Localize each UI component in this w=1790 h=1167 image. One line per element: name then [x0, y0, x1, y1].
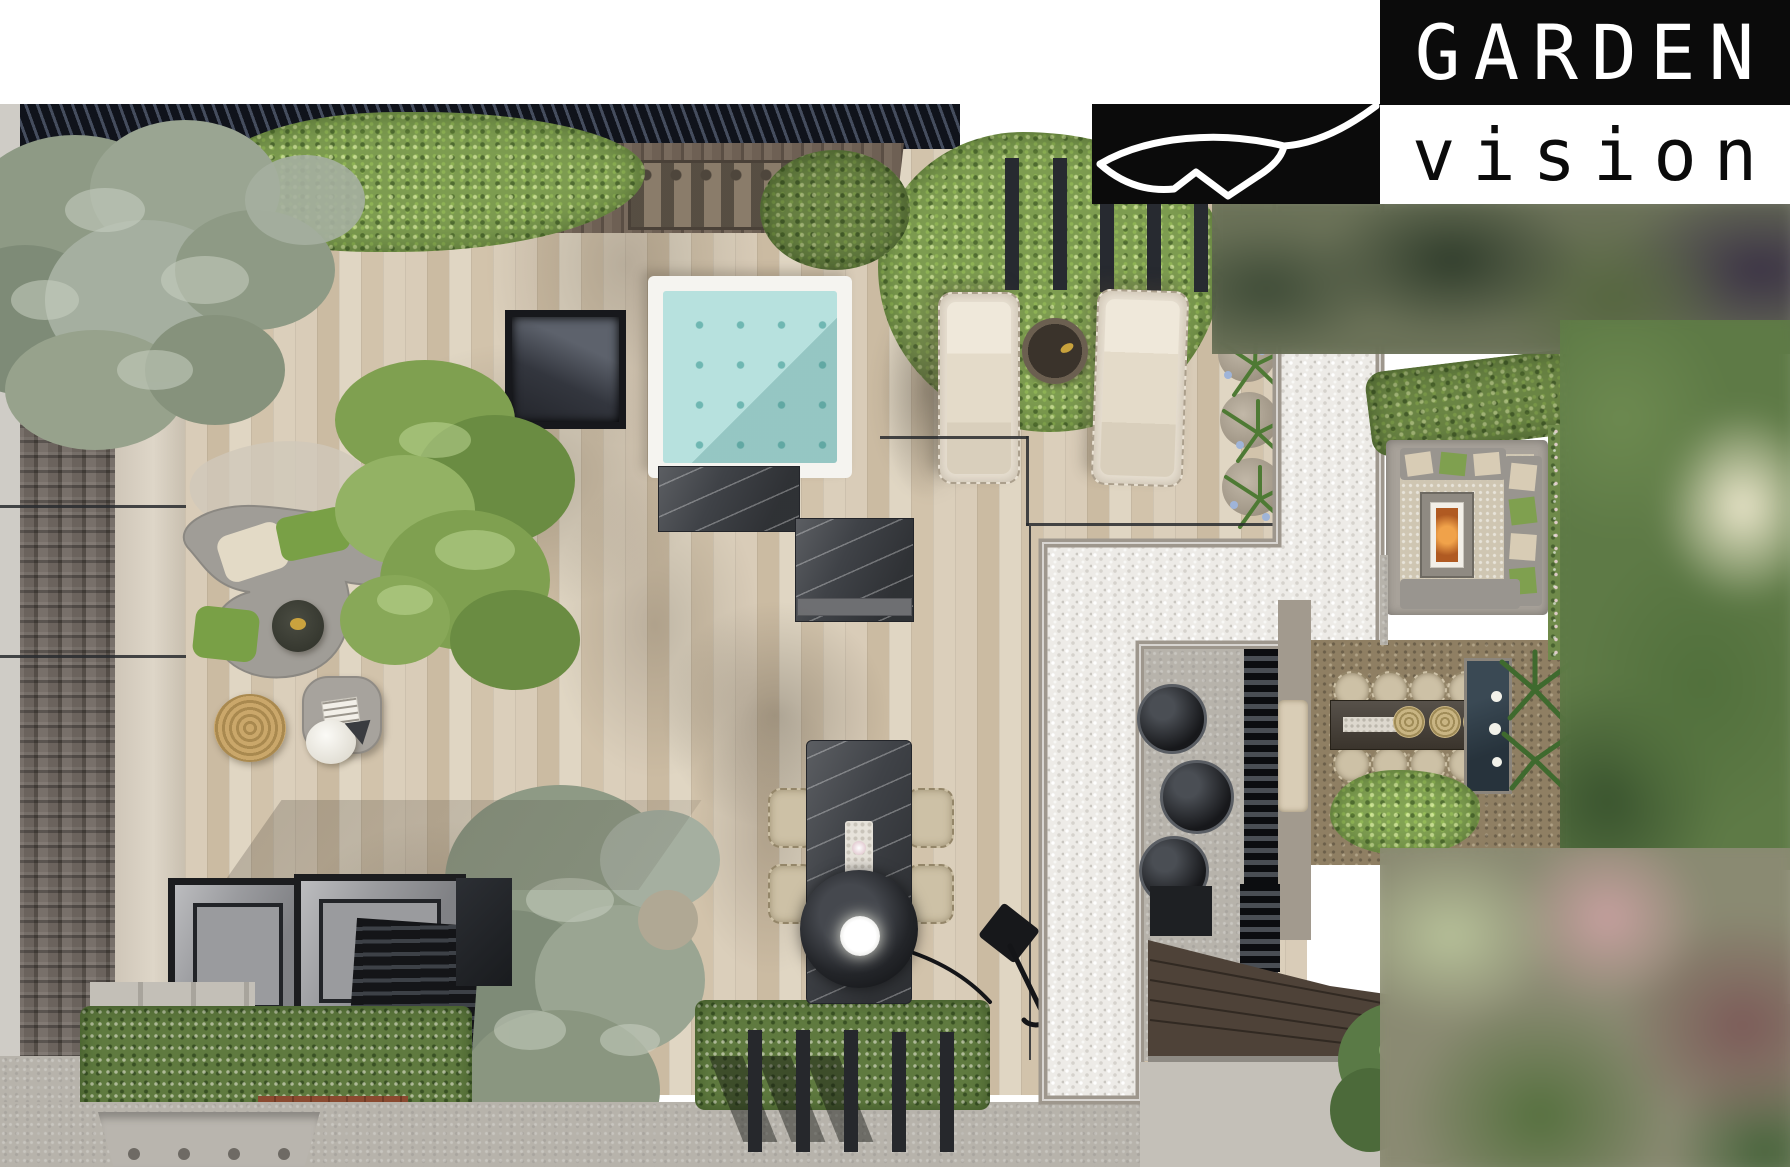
boulder	[638, 890, 698, 950]
logo-leaf-box	[1092, 104, 1380, 204]
wall-bench-cushion	[1278, 700, 1308, 812]
blurred-bokeh-bottom-right	[1380, 848, 1790, 1167]
water-trough	[98, 1112, 320, 1167]
top-white-band	[0, 0, 1380, 104]
wicker-pendant	[1429, 706, 1461, 738]
black-bollard	[796, 1030, 810, 1152]
logo-garden-box: GARDEN	[1380, 0, 1790, 105]
logo-title: GARDEN	[1415, 8, 1768, 97]
black-bollard	[940, 1032, 954, 1152]
garden-plan-render: GARDEN vision	[0, 0, 1790, 1167]
black-bowl-planter	[1160, 760, 1234, 834]
shrub-by-mural	[760, 150, 910, 270]
trough-spout	[228, 1148, 240, 1160]
sunken-lounge	[1386, 440, 1548, 615]
black-bowl-planter	[1137, 684, 1207, 754]
hot-tub	[648, 276, 852, 478]
wicker-pendant	[1393, 706, 1425, 738]
logo-subtitle: vision	[1412, 113, 1774, 197]
black-bollard	[748, 1030, 762, 1152]
dining-chair	[906, 788, 954, 848]
gold-bowl	[290, 618, 306, 630]
trough-spout	[278, 1148, 290, 1160]
lounge-sofa-top	[1400, 448, 1506, 480]
black-bollard	[892, 1032, 906, 1152]
hot-tub-water	[663, 291, 837, 463]
leaf-outline-icon	[1092, 104, 1380, 204]
balustrade-rail	[880, 436, 1028, 439]
sofa-cushion-green	[191, 605, 260, 663]
trough-spout	[178, 1148, 190, 1160]
dome-pendant-lamp	[800, 870, 918, 988]
fire-table	[1420, 492, 1474, 578]
logo-vision-box: vision	[1380, 105, 1790, 204]
trough-spout	[128, 1148, 140, 1160]
rattan-pouf	[214, 694, 286, 762]
underplanting-green	[1330, 770, 1480, 855]
flower-centerpiece	[852, 841, 866, 855]
lounge-step	[1380, 555, 1388, 645]
blurred-foliage-right	[1560, 320, 1790, 870]
fire-flame	[1436, 508, 1458, 562]
fern-tree-center	[315, 350, 585, 700]
lounge-sofa-bottom	[1400, 579, 1520, 609]
sun-lounger-left	[938, 292, 1020, 484]
pergola-post	[1005, 158, 1019, 290]
black-bollard	[844, 1030, 858, 1152]
lamp-bulb	[840, 916, 880, 956]
black-bench	[1150, 886, 1212, 936]
dark-stone-slab	[456, 878, 512, 986]
marble-step	[658, 466, 800, 532]
